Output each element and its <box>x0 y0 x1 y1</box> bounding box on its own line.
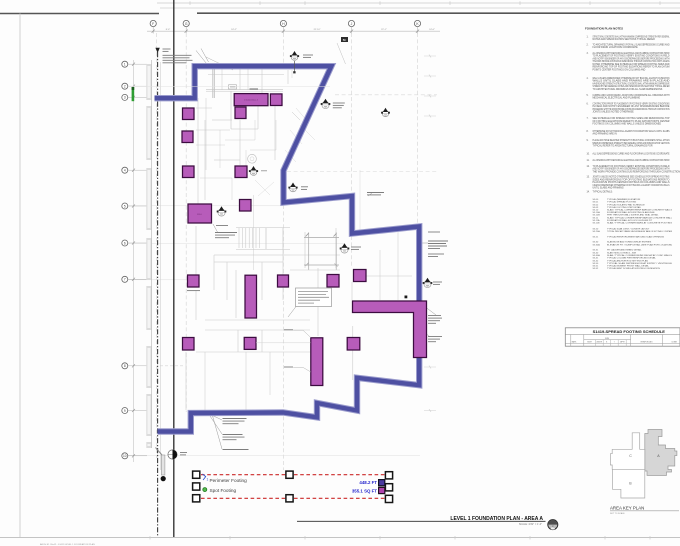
svg-text:N: N <box>552 526 554 529</box>
svg-text:PIT LADDER AND EMBED DETAIL: PIT LADDER AND EMBED DETAIL <box>607 249 642 252</box>
svg-text:JOINTS UNLESS NOTED OTHERWISE: JOINTS UNLESS NOTED OTHERWISE SEE SCHEDU… <box>593 176 670 179</box>
svg-text:F8.0: F8.0 <box>197 214 202 216</box>
svg-text:SLAB EDGE AND TURNDOWN AT ENTR: SLAB EDGE AND TURNDOWN AT ENTRIES <box>607 241 652 244</box>
svg-text:NOTED OTHERWISE SEE SCHEDULE F: NOTED OTHERWISE SEE SCHEDULE FOR SPREAD … <box>593 63 670 66</box>
svg-text:8.: 8. <box>587 131 589 133</box>
svg-text:F: F <box>152 22 154 26</box>
svg-text:SLAB / TYPICAL CORNER REINF BA: SLAB / TYPICAL CORNER REINF BARS AT CONC… <box>607 216 673 219</box>
svg-text:BC: BC <box>343 38 347 42</box>
svg-text:10.: 10. <box>587 154 591 156</box>
svg-text:TYPICAL SLAB DEPRESSION AT ENT: TYPICAL SLAB DEPRESSION AT ENTRY / VESTI… <box>607 262 673 265</box>
svg-text:FLOOR DRAIN LOCATIONS COORDINA: FLOOR DRAIN LOCATIONS COORDINATE <box>593 46 639 49</box>
svg-text:ALL SLAB DEPRESSIONS CURBS AND: ALL SLAB DEPRESSIONS CURBS AND FLOOR DRA… <box>593 153 670 156</box>
svg-text:S5.30A: S5.30A <box>593 243 601 246</box>
svg-text:FOUNDATION WALL AT EXISTING SL: FOUNDATION WALL AT EXISTING SLAB EDGE <box>607 211 655 214</box>
svg-text:S5.50: S5.50 <box>593 263 600 265</box>
svg-text:B: B <box>606 342 607 344</box>
svg-text:THE WORK PROVIDE CONTINUOUS RE: THE WORK PROVIDE CONTINUOUS REINFORCING … <box>593 61 670 63</box>
svg-text:ELEVATOR PIT / SUMP DETAIL (SE: ELEVATOR PIT / SUMP DETAIL (SEE PLAN FOR… <box>607 243 672 246</box>
svg-text:7.: 7. <box>587 118 589 120</box>
svg-text:SLAB / MISC DOWELS - SIM: SLAB / MISC DOWELS - SIM <box>607 251 636 254</box>
svg-text:4: 4 <box>124 169 126 173</box>
svg-text:4.: 4. <box>587 78 589 80</box>
svg-text:STRENGTH PER GENERAL NOTES AND: STRENGTH PER GENERAL NOTES AND SPECIFICA… <box>593 85 670 88</box>
svg-text:MINIMUM COMPRESSIVE STRENGTH P: MINIMUM COMPRESSIVE STRENGTH PER GENERAL… <box>593 142 670 145</box>
svg-text:WIDTH: WIDTH <box>587 342 592 344</box>
svg-text:PIPE THROUGH WALL SLEEVE AND S: PIPE THROUGH WALL SLEEVE AND SEAL DETAIL <box>607 214 659 217</box>
svg-text:SEE SCHEDULE FOR SPREAD FOOTIN: SEE SCHEDULE FOR SPREAD FOOTING SIZES AN… <box>593 117 670 120</box>
svg-text:4 Concrete-C 4: 4 Concrete-C 4 <box>244 99 258 102</box>
svg-text:Perimeter Footing: Perimeter Footing <box>210 478 248 483</box>
svg-text:LEVEL 1 FOUNDATION PLAN - AREA: LEVEL 1 FOUNDATION PLAN - AREA A <box>450 516 543 522</box>
svg-text:S5.11B: S5.11B <box>593 223 601 225</box>
svg-text:TO PLACEMENT OF FOOTINGS VERIF: TO PLACEMENT OF FOOTINGS VERIFY EXISTING… <box>593 165 670 168</box>
svg-text:9.: 9. <box>587 140 589 142</box>
svg-text:3.: 3. <box>587 53 589 55</box>
svg-text:S5.10A: S5.10A <box>593 211 601 214</box>
svg-text:TYPICAL COLUMN PIER REINFORCIN: TYPICAL COLUMN PIER REINFORCING DETAIL <box>607 257 657 260</box>
svg-text:T: T <box>614 342 615 344</box>
svg-text:G: G <box>185 22 188 26</box>
svg-text:5.: 5. <box>587 95 589 97</box>
svg-text:TYPICAL MOMENT FROST WALL DETA: TYPICAL MOMENT FROST WALL DETAIL <box>607 265 650 268</box>
svg-text:J: J <box>351 22 353 26</box>
svg-text:REINFORCING: REINFORCING <box>641 342 653 344</box>
svg-text:13.: 13. <box>587 177 591 179</box>
svg-text:PLACE AND HAVE REACHED STRENGT: PLACE AND HAVE REACHED STRENGTH STRUCTUR… <box>593 139 670 142</box>
svg-text:S5.31: S5.31 <box>593 250 600 252</box>
svg-text:FOUNDATION PLAN NOTES: FOUNDATION PLAN NOTES <box>585 27 623 31</box>
svg-text:TYPICAL ISOLATED PAD SCHEDULE: TYPICAL ISOLATED PAD SCHEDULE <box>607 203 645 206</box>
svg-text:24'-0*: 24'-0* <box>429 29 435 31</box>
svg-text:SLAB / TYPICAL CORNER BARS AT: SLAB / TYPICAL CORNER BARS AT CONCRETE F… <box>607 222 672 225</box>
svg-text:REINFORCING TOP OF FOOTING ELE: REINFORCING TOP OF FOOTING ELEVATIONS RE… <box>593 66 670 69</box>
svg-text:ALL OPENINGS WITH MECHANICAL E: ALL OPENINGS WITH MECHANICAL ELECTRICAL … <box>593 159 670 162</box>
svg-text:TO ARCHITECTURAL DRAWINGS FOR: TO ARCHITECTURAL DRAWINGS FOR ALL SLAB D… <box>593 43 670 46</box>
svg-text:AREA KEY PLAN: AREA KEY PLAN <box>610 505 644 510</box>
svg-text:COMM: COMM <box>671 342 677 344</box>
svg-text:TO ARCHITECTURAL DRAWINGS FOR: TO ARCHITECTURAL DRAWINGS FOR ALL SLAB D… <box>593 88 663 91</box>
svg-text:24'-2*: 24'-2* <box>231 29 237 31</box>
svg-text:S5.20: S5.20 <box>593 229 600 231</box>
svg-text:S5.00: S5.00 <box>593 199 600 201</box>
svg-text:SIZES AND REINFORCING TOP OF F: SIZES AND REINFORCING TOP OF FOOTING ELE… <box>593 178 670 181</box>
svg-text:10: 10 <box>123 454 127 458</box>
svg-text:FOUNDATION WALL AT DOCK LEVELE: FOUNDATION WALL AT DOCK LEVELER PIT <box>607 219 653 222</box>
svg-text:LENGTH: LENGTH <box>596 342 602 344</box>
svg-text:TYPICAL FOOTING STEP DETAIL: TYPICAL FOOTING STEP DETAIL <box>607 206 642 209</box>
svg-text:5: 5 <box>124 204 126 208</box>
svg-text:UNLESS DIMENSIONED OTHERWISE D: UNLESS DIMENSIONED OTHERWISE DO NOT BACK… <box>593 184 670 187</box>
svg-text:IN FIELD AND NOTIFY ENGINEER O: IN FIELD AND NOTIFY ENGINEER OF ANY DISC… <box>593 105 670 108</box>
svg-text:MECHANICAL ELECTRICAL AND PLUM: MECHANICAL ELECTRICAL AND PLUMBING <box>593 97 641 100</box>
svg-text:22'-10*: 22'-10* <box>314 29 321 31</box>
svg-text:9: 9 <box>124 409 126 413</box>
svg-text:TYPICAL SPREAD FOOTING: TYPICAL SPREAD FOOTING <box>607 201 637 204</box>
svg-text:PROCEEDING WITH THE WORK PROVI: PROCEEDING WITH THE WORK PROVIDE CONTINU… <box>593 109 670 111</box>
svg-text:6: 6 <box>124 241 126 245</box>
svg-text:S5.40A: S5.40A <box>593 254 601 257</box>
svg-text:UNTIL SLABS AND FRAMING: UNTIL SLABS AND FRAMING <box>593 187 624 190</box>
svg-text:14.: 14. <box>587 191 591 193</box>
svg-text:CONTRACTORS PRIOR TO PLACEMENT: CONTRACTORS PRIOR TO PLACEMENT OF FOOTIN… <box>593 102 670 105</box>
svg-text:TYPICAL (MEMBER) ELEVATION: TYPICAL (MEMBER) ELEVATION <box>607 198 641 201</box>
svg-text:SCALE: 3/32" = 1'-0": SCALE: 3/32" = 1'-0" <box>519 523 542 526</box>
svg-text:448.2 FT: 448.2 FT <box>359 480 377 485</box>
svg-text:1: 1 <box>207 477 209 481</box>
svg-text:2: 2 <box>124 85 126 89</box>
svg-text:S5.21: S5.21 <box>593 237 600 239</box>
svg-text:TYPICAL REINFORCEMENT AROUND S: TYPICAL REINFORCEMENT AROUND SLAB OPENIN… <box>607 236 665 239</box>
svg-text:HAVE REACHED STRENGTH STRUCTUR: HAVE REACHED STRENGTH STRUCTURAL CONCRET… <box>593 82 670 85</box>
svg-text:POINTS CENTER FOOTINGS ON COLU: POINTS CENTER FOOTINGS ON COLUMNS AND <box>593 68 646 71</box>
svg-text:NOT TO SCALE: NOT TO SCALE <box>610 512 625 515</box>
svg-text:PLAN DATUM POINTS CENTER FOOTI: PLAN DATUM POINTS CENTER FOOTINGS ON COL… <box>593 181 670 184</box>
svg-text:TYPICAL BENT DOWEL AT EXISTING: TYPICAL BENT DOWEL AT EXISTING FOUNDATIO… <box>607 267 660 270</box>
svg-text:1.: 1. <box>587 36 589 38</box>
svg-text:ALL OPENINGS WITH MECHANICAL E: ALL OPENINGS WITH MECHANICAL ELECTRICAL … <box>593 52 670 55</box>
svg-text:11.: 11. <box>587 160 590 162</box>
svg-text:NOTES AND SPECIFICATION SECTIO: NOTES AND SPECIFICATION SECTIONS TYPICAL… <box>593 38 656 41</box>
svg-text:3: 3 <box>124 96 126 100</box>
svg-text:FOOTINGS ON COLUMNS AND WALLS: FOOTINGS ON COLUMNS AND WALLS UNLESS DIM… <box>593 123 662 126</box>
svg-text:TYPICAL DETAILS:: TYPICAL DETAILS: <box>593 190 614 193</box>
svg-text:WALLS UNTIL SLABS AND FRAMING: WALLS UNTIL SLABS AND FRAMING ARE IN PLA… <box>593 80 670 83</box>
svg-text:S5.20A: S5.20A <box>593 230 601 233</box>
svg-text:S5.41: S5.41 <box>593 258 600 260</box>
svg-text:8: 8 <box>124 364 126 368</box>
svg-text:SLAB / TYPICAL CORNER REINF RE: SLAB / TYPICAL CORNER REINF RECAP AT CON… <box>607 254 673 257</box>
svg-text:TYPICAL REFER TO ARCHITECTURAL: TYPICAL REFER TO ARCHITECTURAL DRAWINGS … <box>593 145 653 148</box>
svg-text:12.: 12. <box>587 166 591 168</box>
svg-text:OF FOOTING ELEVATIONS REFER TO: OF FOOTING ELEVATIONS REFER TO PLAN DATU… <box>593 120 670 123</box>
svg-text:TYPICAL SLAB JOINT / CONSTR LA: TYPICAL SLAB JOINT / CONSTR LAYOUT <box>607 228 650 231</box>
svg-text:6.: 6. <box>587 103 589 105</box>
svg-text:Spot Footing: Spot Footing <box>210 488 237 493</box>
svg-text:22'-1*: 22'-1* <box>381 29 387 31</box>
svg-text:SLAB / TYPICAL CORNER REINF BA: SLAB / TYPICAL CORNER REINF BARS AT CONC… <box>607 209 673 212</box>
svg-text:S5.11A: S5.11A <box>593 219 601 222</box>
svg-text:355.1 SQ FT: 355.1 SQ FT <box>352 489 377 494</box>
svg-text:S1419-SPREAD FOOTING SCHEDULE: S1419-SPREAD FOOTING SCHEDULE <box>593 330 665 334</box>
svg-text:S5.30: S5.30 <box>593 242 600 244</box>
svg-text:CURBS AND FLOOR DRAIN LOCATION: CURBS AND FLOOR DRAIN LOCATIONS COORDINA… <box>593 94 670 97</box>
svg-text:JOINTS UNLESS NOTED OTHERWISE: JOINTS UNLESS NOTED OTHERWISE <box>593 112 635 114</box>
svg-text:8'-4*: 8'-4* <box>166 29 171 31</box>
svg-text:7: 7 <box>124 278 126 282</box>
svg-text:OTHERWISE DO NOT BACKFILL AGAI: OTHERWISE DO NOT BACKFILL AGAINST FOUNDA… <box>593 130 670 133</box>
svg-text:AND NOTIFY ENGINEER OF ANY DIS: AND NOTIFY ENGINEER OF ANY DISCREPANCIES… <box>593 57 670 60</box>
svg-text:1: 1 <box>124 63 126 67</box>
svg-text:THE WORK PROVIDE CONTINUOUS RE: THE WORK PROVIDE CONTINUOUS REINFORCING … <box>593 171 680 173</box>
svg-text:STRUCTURAL CONCRETE SHALL ATTA: STRUCTURAL CONCRETE SHALL ATTAIN MINIMUM… <box>593 35 671 38</box>
svg-text:TYPICAL PRECAST FRAME / ANCHOR: TYPICAL PRECAST FRAME / ANCHORAGE AT BAS… <box>607 230 672 233</box>
svg-text:TYPICAL ANCHOR ROD SETTING PLA: TYPICAL ANCHOR ROD SETTING PLAN <box>607 259 648 262</box>
svg-text:S5.52: S5.52 <box>593 268 600 270</box>
svg-text:WALLS UNLESS DIMENSIONED OTHER: WALLS UNLESS DIMENSIONED OTHERWISE DO NO… <box>593 77 670 80</box>
svg-text:C: C <box>629 454 632 458</box>
svg-text:TO PLACEMENT OF FOOTINGS VERIF: TO PLACEMENT OF FOOTINGS VERIFY EXISTING… <box>593 55 670 58</box>
svg-text:AND FRAMING ARE IN: AND FRAMING ARE IN <box>593 133 618 136</box>
svg-text:2.: 2. <box>587 44 589 46</box>
svg-text:AND NOTIFY ENGINEER OF ANY DIS: AND NOTIFY ENGINEER OF ANY DISCREPANCIES… <box>593 168 670 171</box>
svg-text:DEPTH: DEPTH <box>620 342 625 344</box>
